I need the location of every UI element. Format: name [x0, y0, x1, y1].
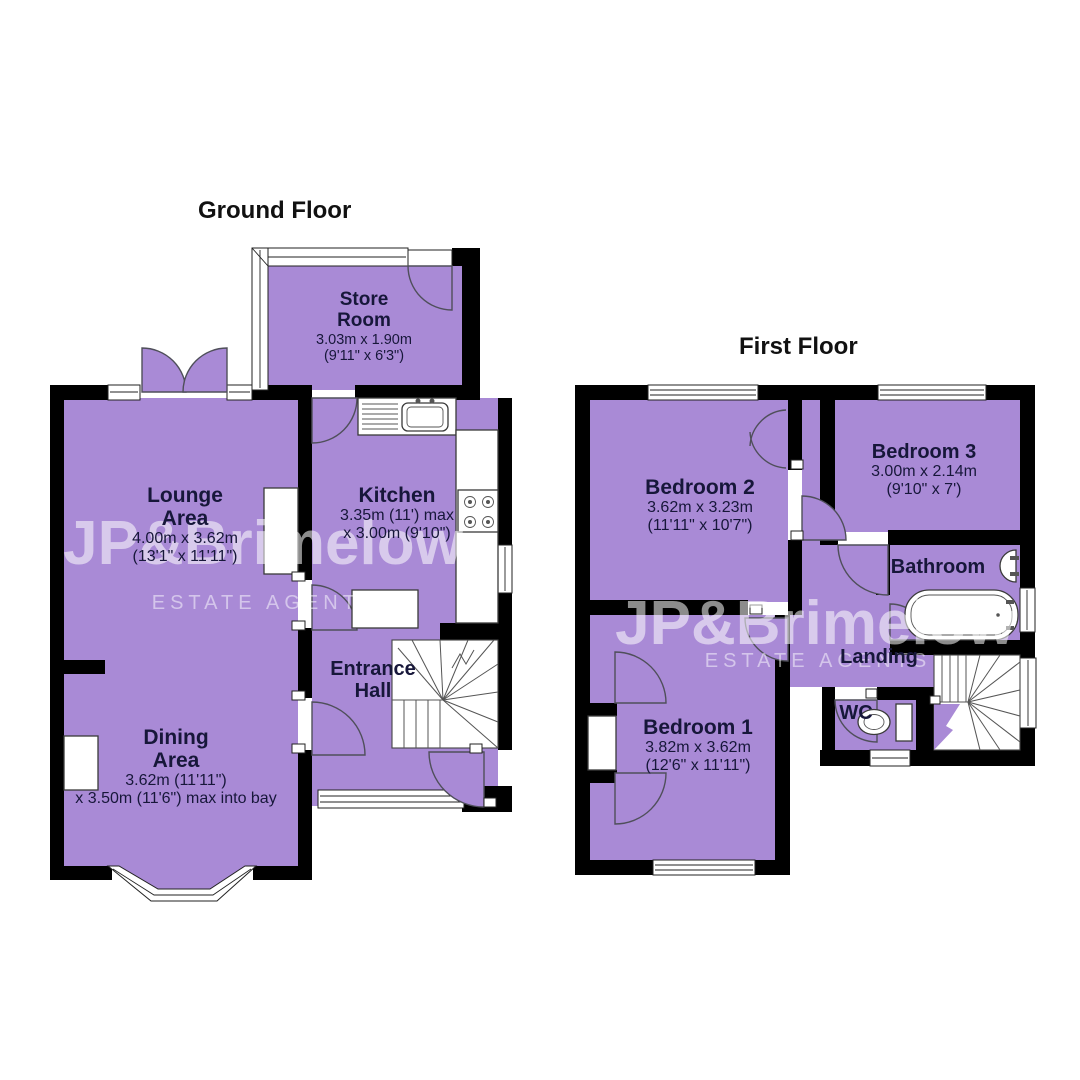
room-name: Bedroom 2	[645, 476, 755, 499]
room-dims: 3.62m (11'11")	[75, 772, 276, 790]
french-door-right-arc	[183, 348, 227, 392]
room-name: Store	[316, 290, 412, 311]
label-bedroom-3: Bedroom 3 3.00m x 2.14m (9'10" x 7')	[871, 441, 977, 499]
label-bedroom-2: Bedroom 2 3.62m x 3.23m (11'11" x 10'7")	[645, 476, 755, 535]
room-name: Bathroom	[891, 556, 985, 578]
label-wc: WC	[839, 702, 872, 724]
label-store-room: Store Room 3.03m x 1.90m (9'11" x 6'3")	[316, 290, 412, 364]
room-name: Bedroom 3	[871, 441, 977, 463]
label-dining: Dining Area 3.62m (11'11") x 3.50m (11'6…	[75, 726, 276, 808]
ground-floor-title: Ground Floor	[198, 197, 351, 225]
room-dims: 3.62m x 3.23m	[645, 499, 755, 517]
first-floor-title: First Floor	[739, 333, 858, 361]
room-dims: (12'6" x 11'11")	[643, 757, 753, 775]
room-name: Area	[132, 507, 238, 530]
room-dims: x 3.50m (11'6") max into bay	[75, 790, 276, 808]
room-dims: 3.82m x 3.62m	[643, 739, 753, 757]
room-name: Room	[316, 311, 412, 332]
room-dims: (9'10" x 7')	[871, 481, 977, 499]
floorplan-canvas: JP&Brimelow ESTATE AGENTS JP&Brimelow ES…	[0, 0, 1080, 1080]
label-bathroom: Bathroom	[891, 556, 985, 578]
label-kitchen: Kitchen 3.35m (11') max x 3.00m (9'10")	[340, 484, 454, 543]
first-stairs	[934, 655, 1020, 750]
room-name: Entrance	[330, 658, 416, 680]
room-name: Area	[75, 749, 276, 772]
room-name: WC	[839, 702, 872, 724]
room-dims: 4.00m x 3.62m	[132, 530, 238, 548]
label-bedroom-1: Bedroom 1 3.82m x 3.62m (12'6" x 11'11")	[643, 716, 753, 775]
room-name: Lounge	[132, 484, 238, 507]
room-name: Kitchen	[340, 484, 454, 507]
french-door-left-arc	[142, 348, 186, 392]
room-dims: 3.35m (11') max	[340, 507, 454, 525]
room-dims: (13'1" x 11'11")	[132, 548, 238, 566]
room-name: Landing	[840, 646, 918, 668]
hob-icon	[458, 490, 498, 532]
label-entrance-hall: Entrance Hall	[330, 658, 416, 702]
room-dims: 3.03m x 1.90m	[316, 332, 412, 348]
room-name: Dining	[75, 726, 276, 749]
label-landing: Landing	[840, 646, 918, 668]
room-dims: x 3.00m (9'10")	[340, 525, 454, 543]
chimney-recess	[588, 716, 616, 770]
room-dims: (11'11" x 10'7")	[645, 517, 755, 535]
sink-unit-icon	[358, 398, 456, 435]
room-name: Bedroom 1	[643, 716, 753, 739]
label-lounge: Lounge Area 4.00m x 3.62m (13'1" x 11'11…	[132, 484, 238, 566]
bath-icon	[905, 590, 1018, 640]
room-dims: 3.00m x 2.14m	[871, 463, 977, 481]
room-name: Hall	[330, 680, 416, 702]
room-dims: (9'11" x 6'3")	[316, 348, 412, 364]
